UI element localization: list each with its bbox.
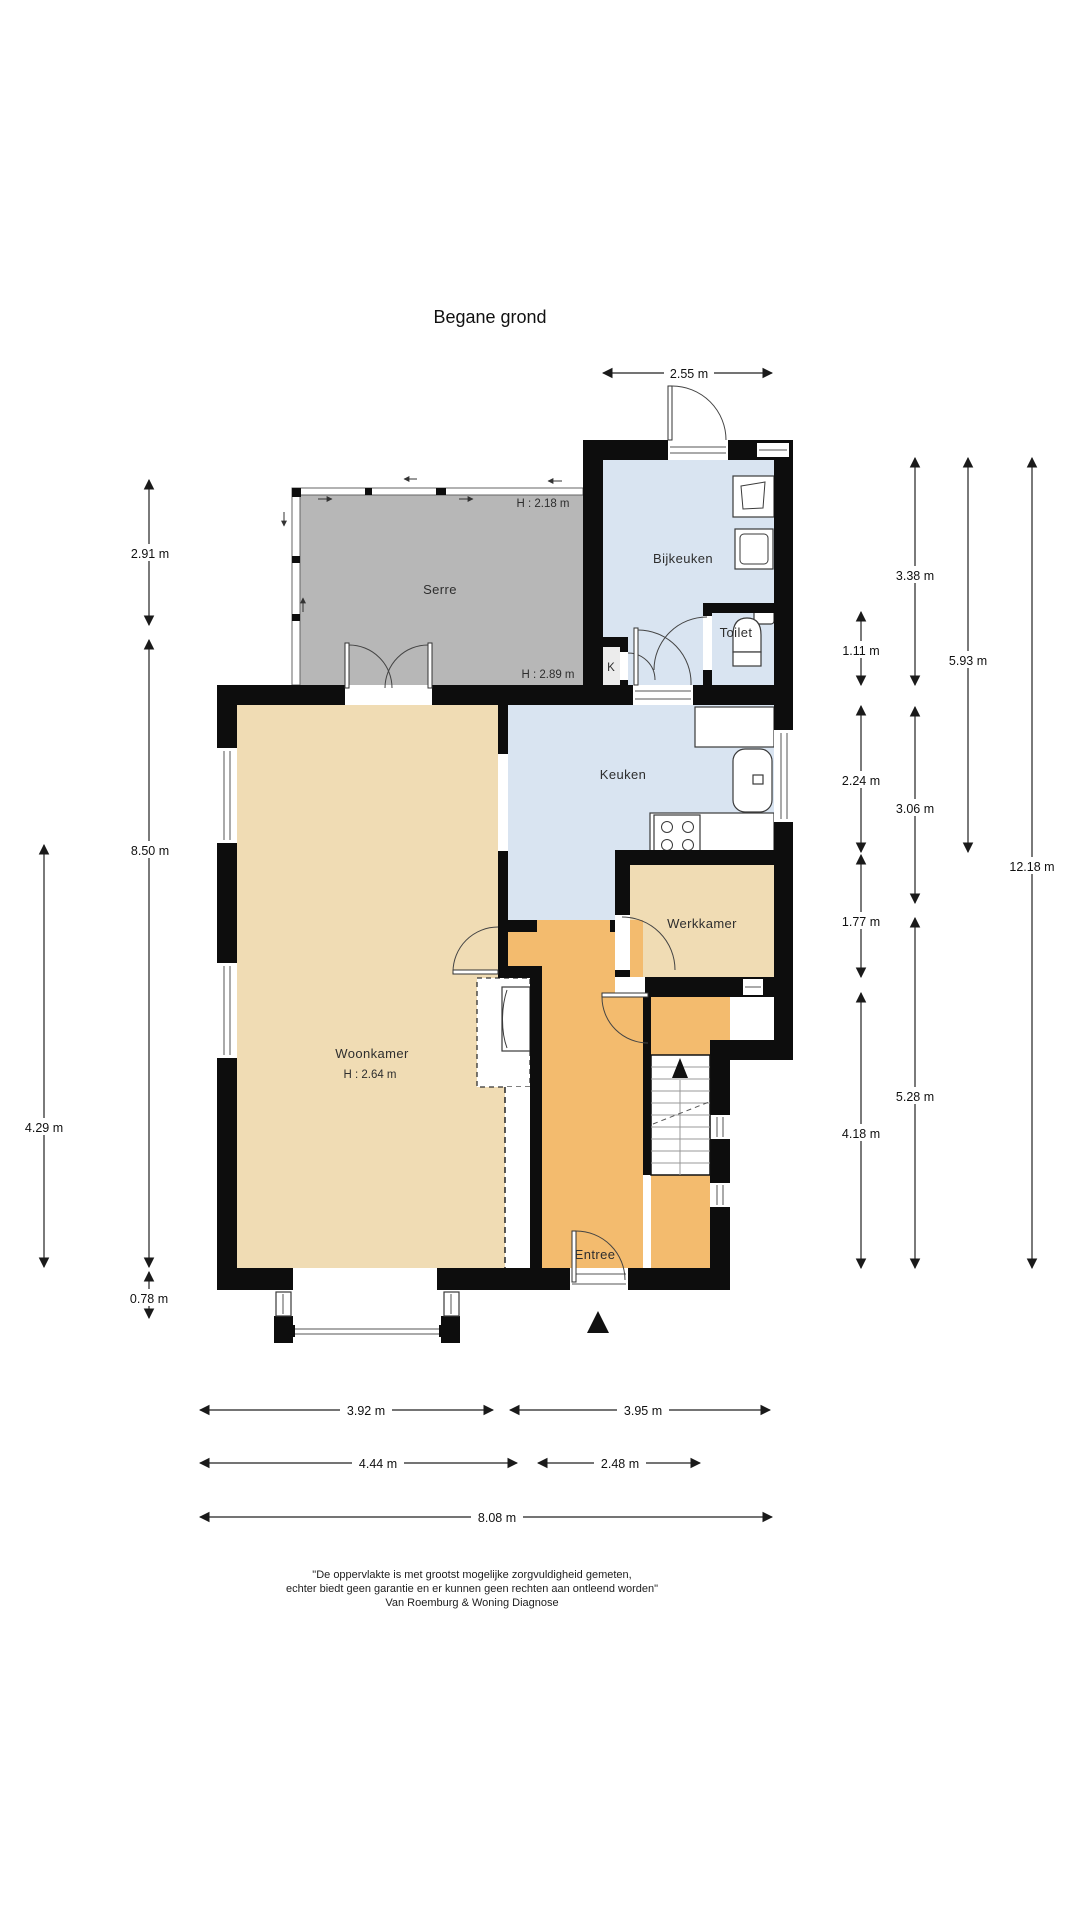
wall: [703, 603, 774, 613]
ceiling-height-label: H : 2.18 m: [516, 498, 569, 510]
dimension-left-serre: 2.91 m: [123, 480, 176, 625]
closet-door-opening: [620, 652, 628, 680]
dimension-right-werkkamer: 1.77 m: [835, 855, 888, 977]
window: [710, 1183, 730, 1207]
dimension-right-lower-total: 5.28 m: [889, 918, 942, 1268]
dimension-right-bijkeuken: 3.38 m: [889, 458, 942, 685]
staircase: [651, 1055, 710, 1175]
bay-window: [276, 1292, 459, 1337]
dimension-right-keuken: 2.24 m: [835, 706, 888, 852]
dim-label: 1.77 m: [842, 915, 880, 929]
window: [217, 963, 237, 1058]
dim-label: 5.28 m: [896, 1090, 934, 1104]
passage-opening: [498, 750, 508, 855]
room-label-entree: Entree: [575, 1247, 616, 1262]
wall: [583, 440, 603, 705]
dim-label: 0.78 m: [130, 1292, 168, 1306]
kitchen-faucet: [753, 775, 763, 784]
footer-line: "De oppervlakte is met grootst mogelijke…: [312, 1569, 631, 1581]
dim-label: 4.44 m: [359, 1457, 397, 1471]
door-opening: [668, 440, 728, 460]
door-opening: [633, 685, 693, 705]
front-door-opening: [570, 1268, 628, 1290]
dim-label: 2.91 m: [131, 547, 169, 561]
dim-label: 4.18 m: [842, 1127, 880, 1141]
wall: [508, 920, 537, 932]
room-label-closet: K: [607, 662, 615, 674]
dim-label: 12.18 m: [1009, 860, 1054, 874]
serre-window-wall: [292, 488, 300, 685]
dim-label: 1.11 m: [842, 644, 879, 658]
dimension-bottom-entree: 3.95 m: [510, 1401, 770, 1418]
wall: [610, 920, 615, 932]
door-bijkeuken-entry: [668, 386, 726, 440]
stove: [654, 815, 700, 855]
page-title: Begane grond: [433, 307, 546, 327]
werkkamer-door-opening: [615, 915, 630, 970]
ceiling-height-label: H : 2.64 m: [343, 1069, 396, 1081]
wall: [530, 978, 542, 1268]
wall: [365, 488, 372, 495]
wall: [436, 488, 446, 495]
dim-label: 2.48 m: [601, 1457, 639, 1471]
dimension-right-entree: 4.18 m: [835, 993, 888, 1268]
dimension-right-total: 12.18 m: [1002, 458, 1062, 1268]
room-entree-floor: [542, 966, 643, 1268]
serre-door-opening: [345, 685, 432, 705]
wall: [292, 556, 300, 563]
floorplan-drawing: 2.55 m 2.91 m 8.50 m 4.29 m 0.78 m 3.38 …: [0, 0, 1080, 1920]
dimension-top-bijkeuken: 2.55 m: [603, 364, 772, 381]
room-label-keuken: Keuken: [600, 767, 647, 782]
dim-label: 3.92 m: [347, 1404, 385, 1418]
window: [217, 748, 237, 843]
wall: [583, 637, 628, 647]
dim-label: 8.08 m: [478, 1511, 516, 1525]
dim-label: 3.06 m: [896, 802, 934, 816]
toilet-cistern: [733, 652, 761, 666]
wall: [710, 1040, 730, 1290]
window: [710, 1115, 730, 1139]
room-label-serre: Serre: [423, 582, 457, 597]
dim-label: 2.55 m: [670, 367, 708, 381]
ceiling-height-label: H : 2.89 m: [521, 669, 574, 681]
dim-label: 8.50 m: [131, 844, 169, 858]
dim-label: 5.93 m: [949, 654, 987, 668]
room-woonkamer-floor: [237, 705, 505, 1268]
room-label-woonkamer: Woonkamer: [335, 1046, 409, 1061]
dimension-right-upper-total: 5.93 m: [942, 458, 995, 852]
kitchen-counter: [695, 707, 774, 747]
dimension-bottom-woonkamer: 3.92 m: [200, 1401, 493, 1418]
wall: [498, 966, 542, 978]
dim-label: 3.38 m: [896, 569, 934, 583]
dimension-left-house: 8.50 m: [123, 640, 176, 1267]
bay-opening: [293, 1268, 437, 1290]
dimension-left-lower: 4.29 m: [18, 845, 71, 1267]
window: [774, 730, 793, 822]
floorplan-page: 2.55 m 2.91 m 8.50 m 4.29 m 0.78 m 3.38 …: [0, 0, 1080, 1920]
dim-label: 4.29 m: [25, 1121, 63, 1135]
room-label-bijkeuken: Bijkeuken: [653, 551, 713, 566]
dimension-bottom-right-total: 2.48 m: [538, 1454, 700, 1471]
dimension-right-toilet: 1.11 m: [835, 612, 888, 685]
entrance-marker-triangle: [587, 1311, 609, 1333]
wall: [292, 488, 301, 497]
room-label-werkkamer: Werkkamer: [667, 916, 737, 931]
footer-disclaimer: "De oppervlakte is met grootst mogelijke…: [286, 1569, 658, 1609]
understairs-area: [505, 1087, 530, 1268]
wall: [217, 685, 793, 705]
bijkeuken-sink: [733, 476, 774, 517]
dimension-right-keuken-total: 3.06 m: [889, 707, 942, 903]
footer-line: echter biedt geen garantie en er kunnen …: [286, 1583, 658, 1595]
dimension-bottom-total: 8.08 m: [200, 1508, 772, 1525]
toilet-door-opening: [703, 616, 712, 670]
wall: [630, 850, 793, 865]
dim-label: 3.95 m: [624, 1404, 662, 1418]
room-label-toilet: Toilet: [720, 625, 753, 640]
chimney: [502, 987, 530, 1051]
wall: [292, 614, 300, 621]
room-entree-floor: [651, 1175, 710, 1268]
wall: [774, 440, 793, 705]
dimension-left-bay: 0.78 m: [123, 1272, 176, 1318]
dim-label: 2.24 m: [842, 774, 880, 788]
dimension-bottom-left-total: 4.44 m: [200, 1454, 517, 1471]
wall: [643, 997, 651, 1175]
footer-line: Van Roemburg & Woning Diagnose: [385, 1597, 558, 1609]
